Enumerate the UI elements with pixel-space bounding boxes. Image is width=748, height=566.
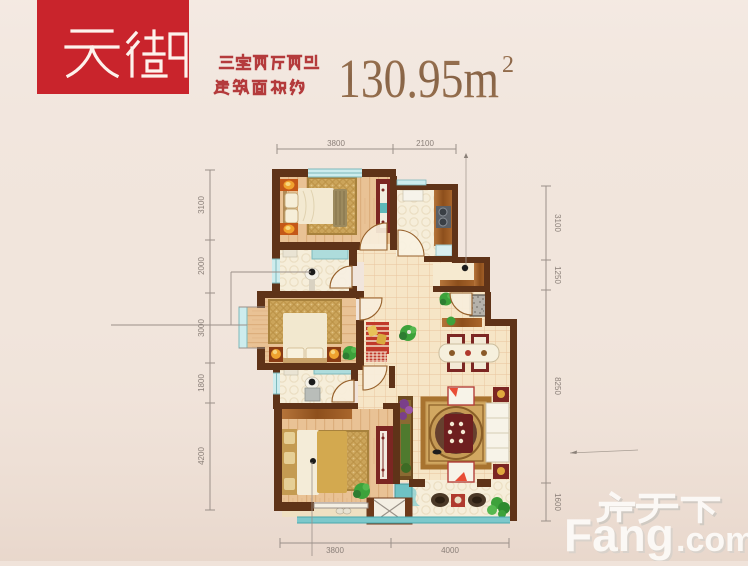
svg-text:1250: 1250 bbox=[553, 266, 562, 284]
svg-text:2: 2 bbox=[502, 52, 514, 78]
svg-text:3100: 3100 bbox=[197, 196, 206, 214]
svg-text:2100: 2100 bbox=[416, 139, 434, 148]
svg-text:Fang: Fang bbox=[564, 509, 674, 561]
svg-text:4000: 4000 bbox=[441, 546, 459, 555]
svg-text:.com: .com bbox=[676, 521, 748, 559]
svg-text:1600: 1600 bbox=[553, 493, 562, 511]
svg-text:130.95m: 130.95m bbox=[338, 48, 499, 109]
svg-text:3800: 3800 bbox=[327, 139, 345, 148]
svg-text:3000: 3000 bbox=[197, 319, 206, 337]
svg-text:4200: 4200 bbox=[197, 447, 206, 465]
svg-text:3800: 3800 bbox=[326, 546, 344, 555]
svg-text:8250: 8250 bbox=[553, 377, 562, 395]
svg-text:2000: 2000 bbox=[197, 257, 206, 275]
svg-text:1800: 1800 bbox=[197, 374, 206, 392]
svg-text:3100: 3100 bbox=[553, 214, 562, 232]
